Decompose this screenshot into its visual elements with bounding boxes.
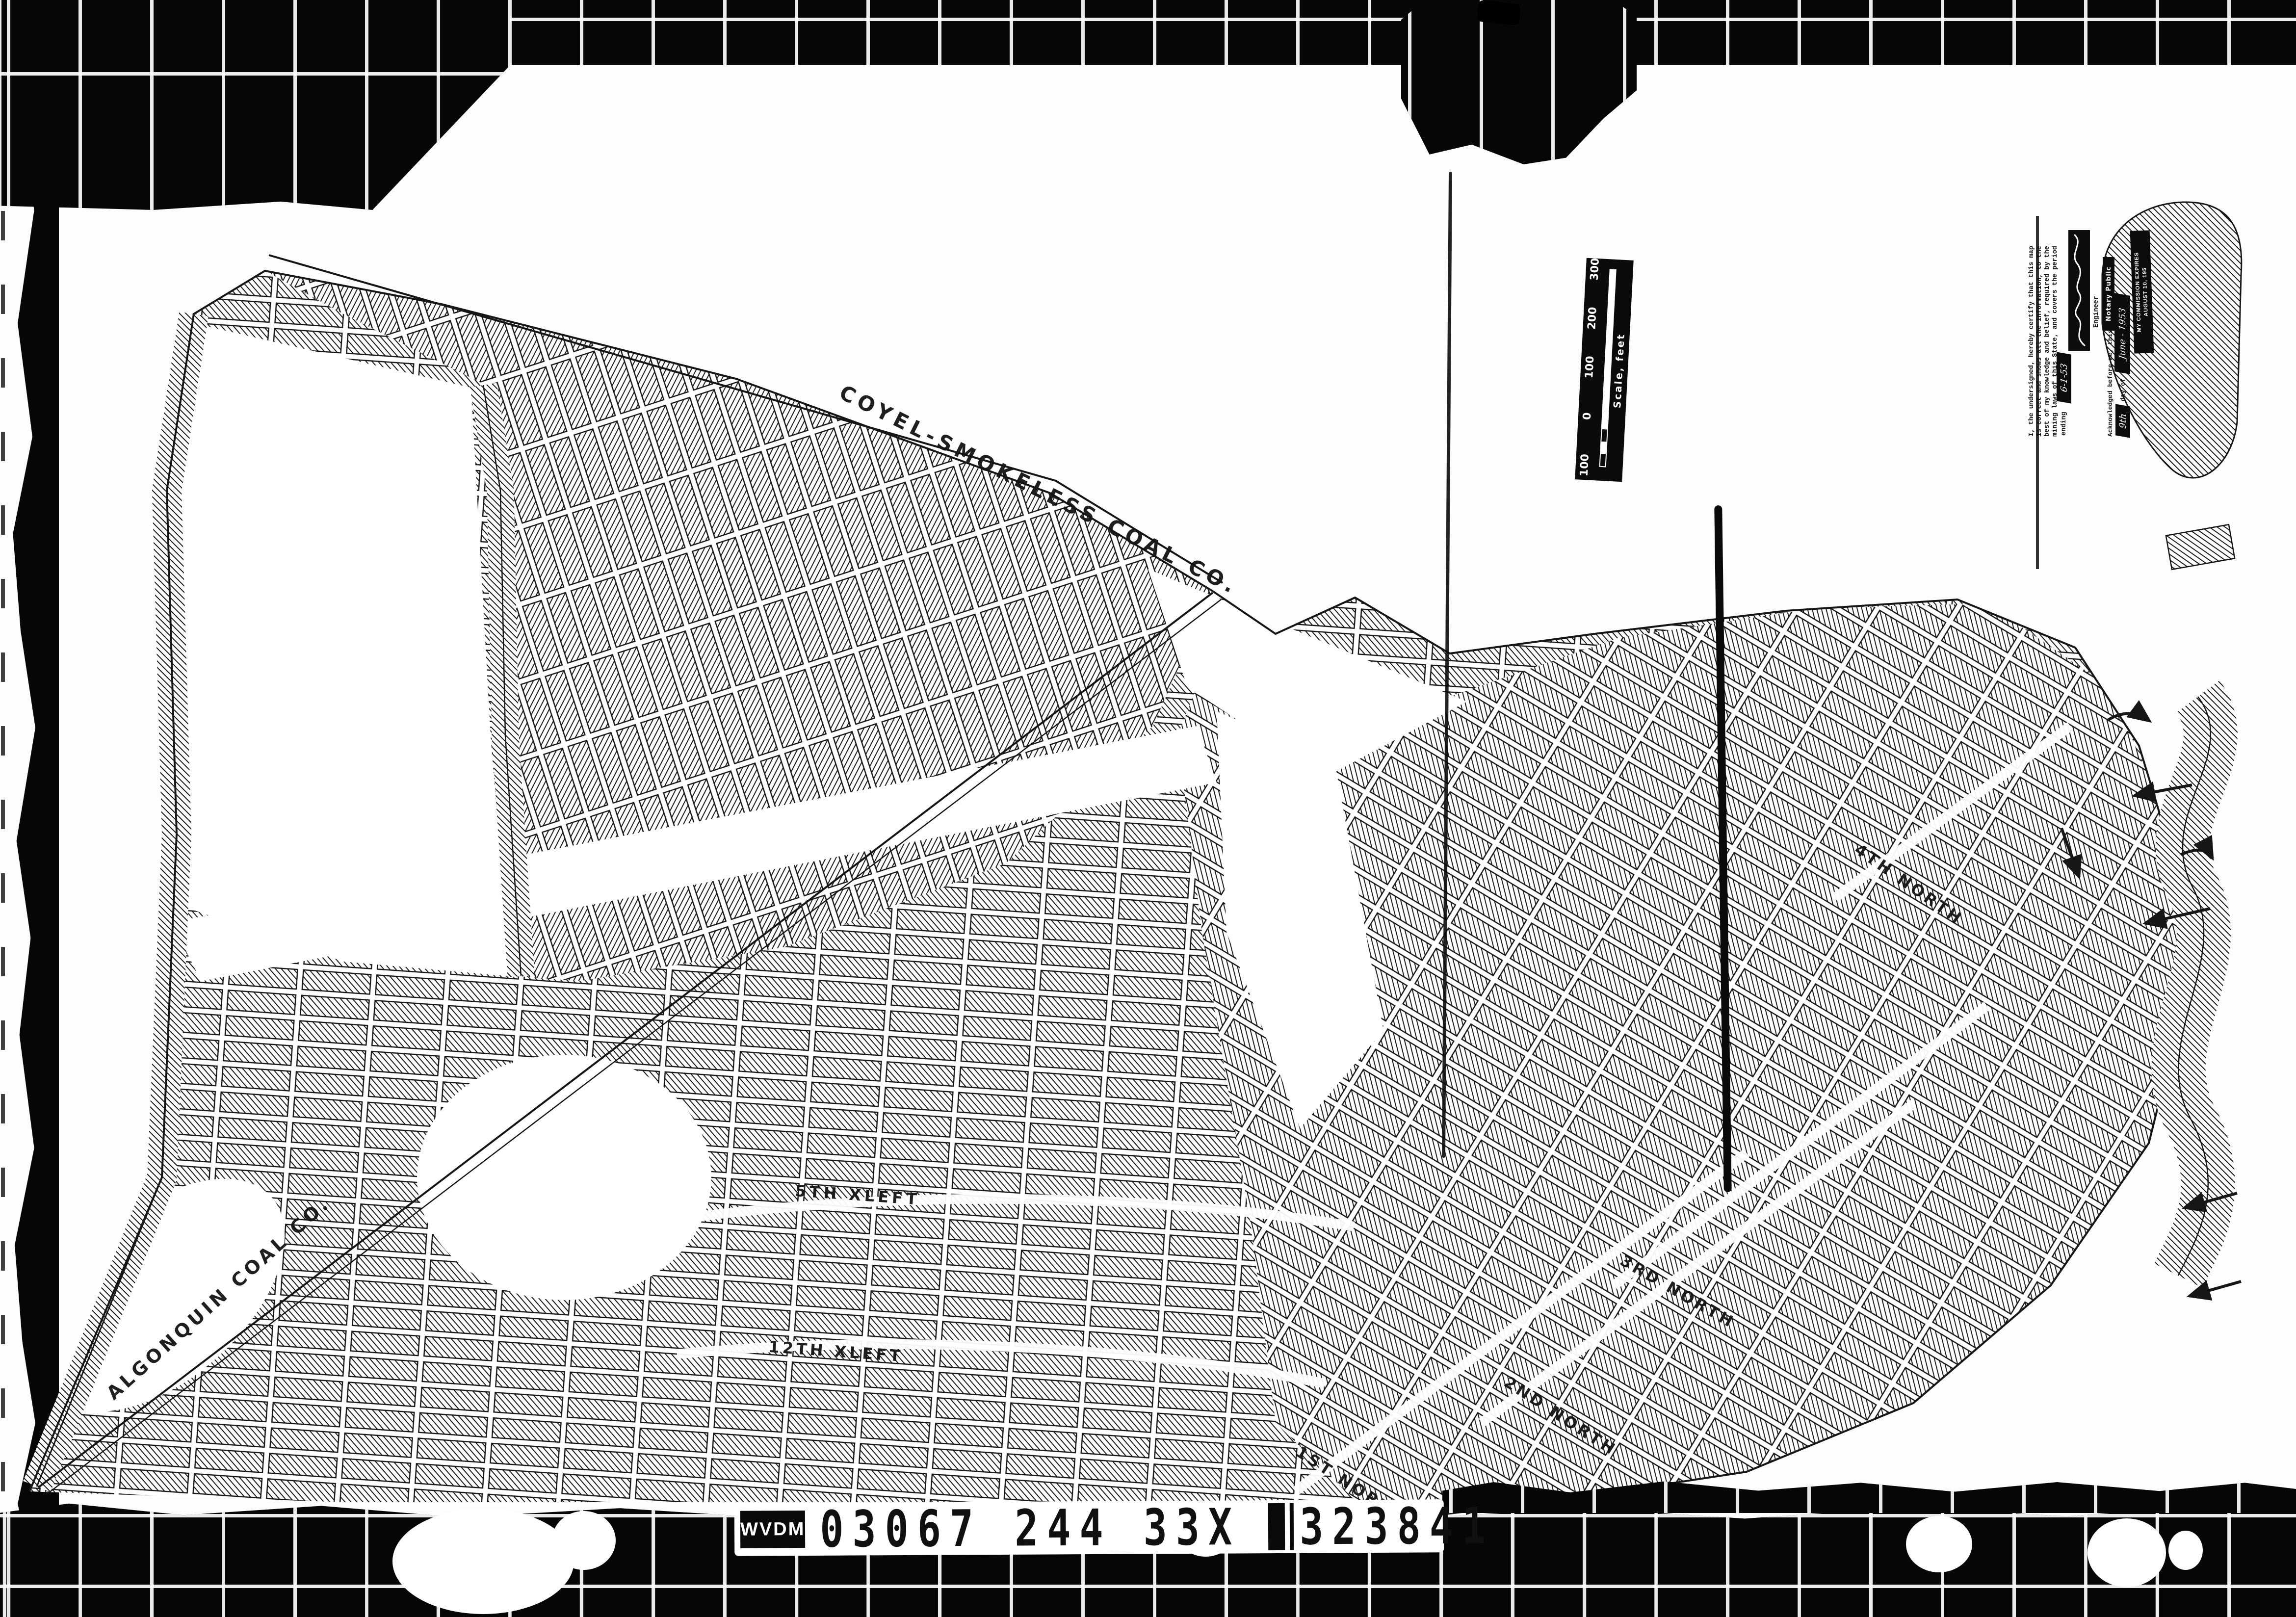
light-leak-blob <box>552 1511 616 1570</box>
stamp-line: AUGUST 10, 195 <box>2141 267 2150 316</box>
notary-commission-stamp: MY COMMISSION EXPIRES AUGUST 10, 195 <box>2130 230 2154 353</box>
light-leak-blob <box>2168 1531 2203 1570</box>
film-edge-marks <box>1 211 5 1496</box>
scale-tick: 200 <box>1586 303 1599 333</box>
certification-ending-label: ending <box>2061 412 2068 436</box>
microfilm-scan: COYEL-SMOKELESS COAL CO. ALGONQUIN COAL … <box>0 0 2296 1617</box>
light-leak-blob <box>2087 1518 2166 1587</box>
day-of-label: day of <box>2119 378 2127 401</box>
id-strip-code: 244 <box>1015 1498 1112 1557</box>
engineer-signature <box>2068 230 2090 351</box>
scale-tick: 100 <box>1578 450 1592 480</box>
handwritten-ending-date: 6-1-53 <box>2057 352 2071 403</box>
signature-scribble-icon <box>2070 233 2088 348</box>
scale-tick: 100 <box>1583 352 1597 382</box>
certification-line: best of my knowledge and belief, require… <box>2044 226 2051 437</box>
mine-workings-drawing <box>0 0 2296 1617</box>
id-strip-separator-bar <box>1268 1503 1285 1550</box>
light-leak-blob <box>392 1509 574 1614</box>
mined-panels <box>0 0 2296 1617</box>
scale-tick: 0 <box>1580 401 1594 431</box>
id-strip-code: 323841 <box>1300 1496 1495 1556</box>
handwritten-day: 9th <box>2115 404 2130 438</box>
id-strip-separator-bar <box>1290 1503 1294 1550</box>
id-strip-code: 33X <box>1143 1498 1241 1557</box>
notary-title-box: Notary Public <box>2103 257 2114 331</box>
handwritten-month-year: June - 1953 <box>2114 293 2130 374</box>
acknowledgement-text: Acknowledged before me, this <box>2107 330 2114 437</box>
film-mark <box>1477 0 1521 26</box>
certification-line: is correct and shows all the information… <box>2036 226 2043 437</box>
id-strip-code: 03067 <box>820 1499 982 1559</box>
film-id-strip: WVDM 03067 244 33X 323841 <box>734 1499 1444 1556</box>
scale-tick: 300 <box>1588 254 1602 284</box>
signer-title: Engineer <box>2093 296 2100 328</box>
certification-line: I, the undersigned, hereby certify that … <box>2028 226 2035 437</box>
light-leak-blob <box>1906 1516 1972 1572</box>
certification-block: I, the undersigned, hereby certify that … <box>2025 223 2153 442</box>
certification-line: mining laws of this State, and covers th… <box>2052 226 2059 437</box>
id-strip-prefix-badge: WVDM <box>740 1511 806 1548</box>
